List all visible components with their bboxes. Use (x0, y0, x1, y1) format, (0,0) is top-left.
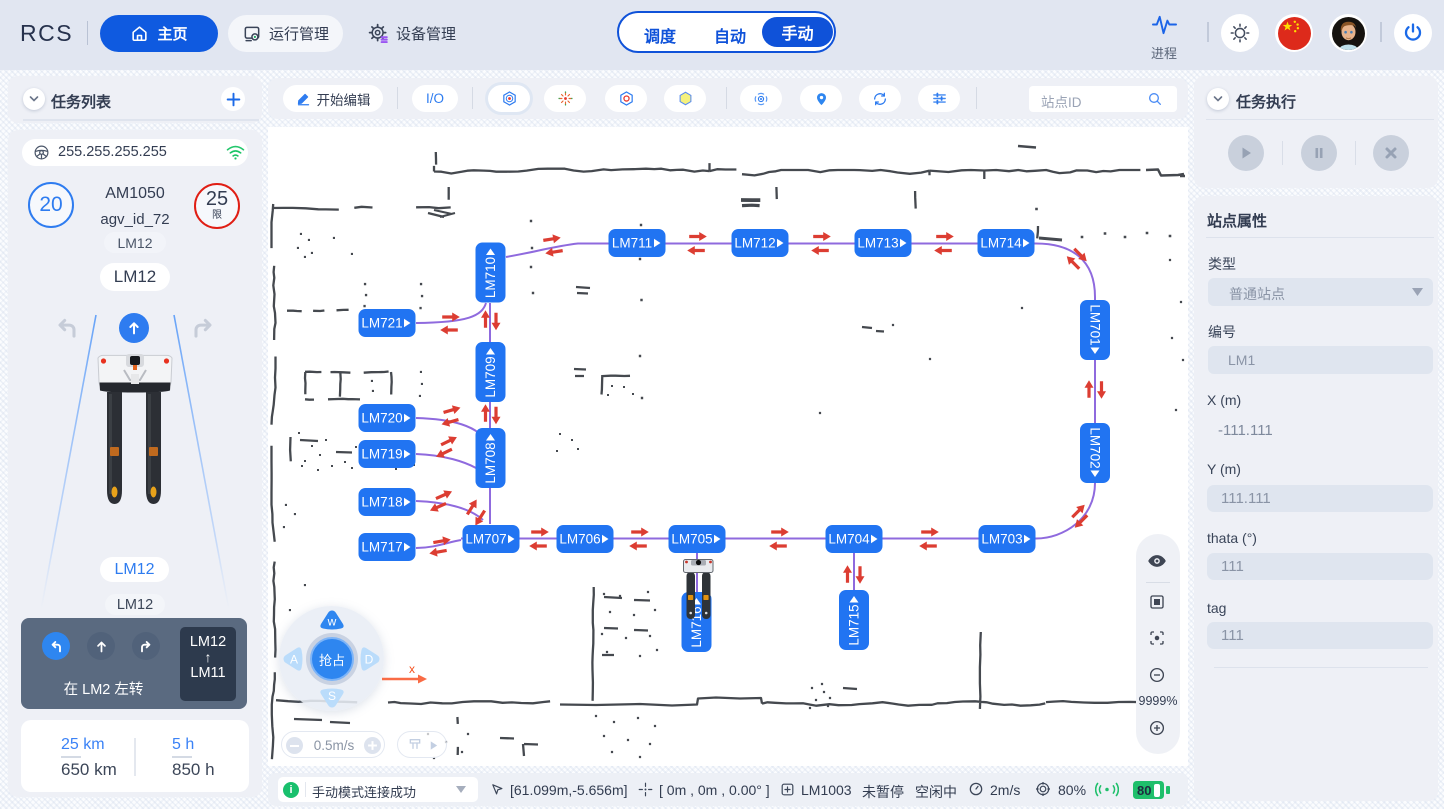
svg-text:LM712: LM712 (734, 236, 775, 251)
svg-text:LM704: LM704 (828, 532, 870, 547)
svg-text:LM709: LM709 (483, 356, 498, 397)
svg-text:LM717: LM717 (361, 540, 402, 555)
svg-text:LM708: LM708 (483, 442, 498, 483)
svg-text:LM721: LM721 (361, 316, 402, 331)
svg-text:LM711: LM711 (612, 236, 652, 251)
svg-text:LM718: LM718 (361, 495, 402, 510)
svg-text:D: D (365, 653, 374, 667)
svg-text:LM705: LM705 (671, 532, 712, 547)
svg-text:LM702: LM702 (1088, 427, 1103, 468)
svg-text:LM719: LM719 (361, 447, 402, 462)
svg-text:w: w (327, 615, 337, 629)
svg-text:LM714: LM714 (980, 236, 1022, 251)
svg-text:LM715: LM715 (847, 604, 862, 645)
svg-text:A: A (290, 653, 298, 667)
svg-text:LM707: LM707 (465, 532, 506, 547)
svg-text:x: x (409, 663, 415, 676)
svg-text:LM703: LM703 (981, 532, 1022, 547)
svg-text:LM713: LM713 (857, 236, 898, 251)
svg-text:LM710: LM710 (483, 257, 498, 298)
svg-text:LM701: LM701 (1088, 304, 1103, 345)
svg-text:LM720: LM720 (361, 411, 402, 426)
svg-text:LM706: LM706 (559, 532, 600, 547)
svg-text:S: S (328, 689, 336, 703)
